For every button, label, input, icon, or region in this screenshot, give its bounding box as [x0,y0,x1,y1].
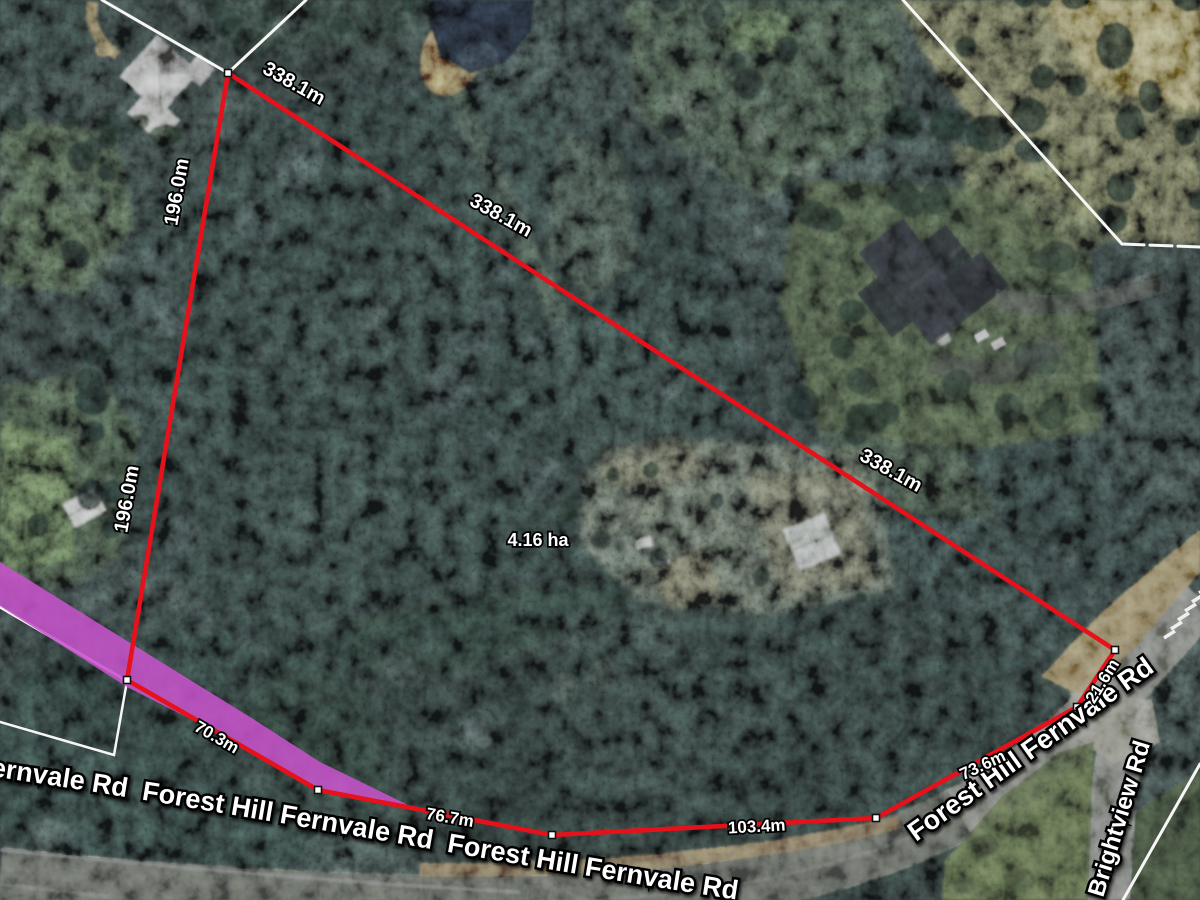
svg-text:103.4m: 103.4m [727,816,786,838]
svg-text:4.16 ha: 4.16 ha [507,530,569,550]
